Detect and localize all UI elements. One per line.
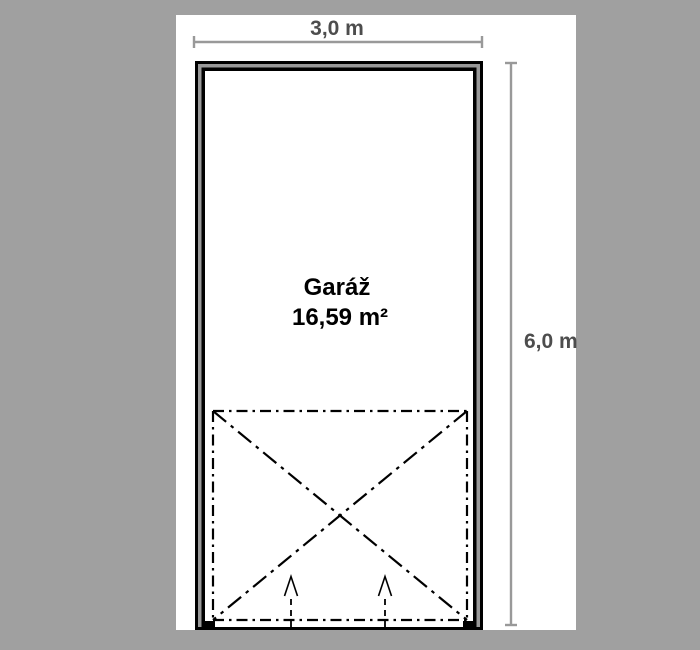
width-dimension-label: 3,0 m [310,17,364,40]
room-area-label: 16,59 m² [292,304,388,331]
threshold-line [195,627,483,630]
garage-interior [205,71,473,621]
height-dimension-label: 6,0 m [524,330,578,353]
door-opening [215,621,463,627]
room-name-label: Garáž [304,274,371,301]
garage-walls [195,61,483,630]
floor-plan-canvas: 3,0 m 6,0 m Garáž 16,59 m² [0,0,700,650]
floor-plan-drawing: 3,0 m 6,0 m Garáž 16,59 m² [0,0,700,650]
